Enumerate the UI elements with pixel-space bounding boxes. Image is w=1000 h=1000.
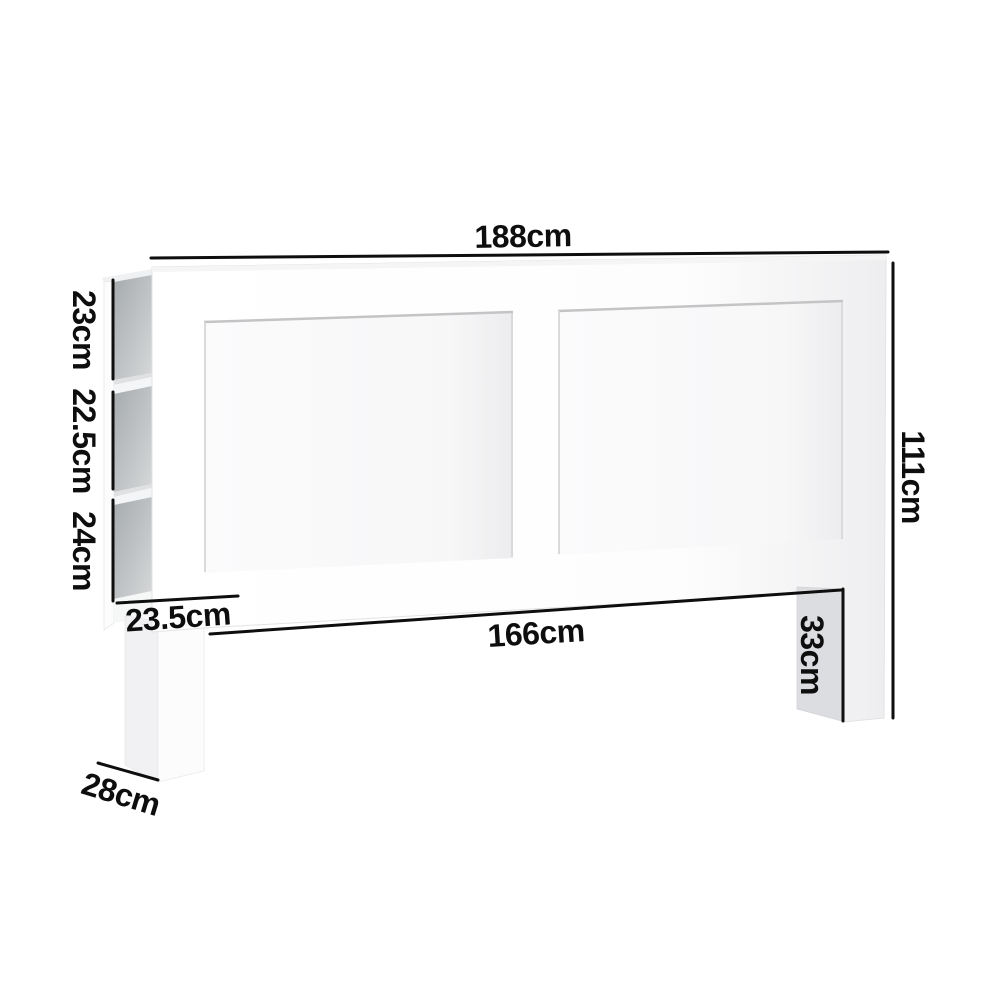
dim-label-shelf-depth: 23.5cm [124, 595, 232, 638]
shelf-column [102, 269, 152, 630]
dim-label-leg-height: 33cm [794, 615, 830, 695]
shelf-opening-bottom [114, 497, 152, 599]
left-leg [125, 616, 204, 782]
shelf-opening-middle [114, 386, 152, 492]
dim-label-shelf-opening-bottom: 24cm [66, 511, 102, 591]
left-leg-front-face [158, 616, 204, 782]
shelf-opening-top [114, 275, 152, 380]
left-leg-side-face [125, 616, 158, 782]
diagram-canvas: 188cm 23cm 22.5cm 24cm 23.5cm 166cm 33cm… [0, 0, 1000, 1000]
headboard-dimension-diagram: 188cm 23cm 22.5cm 24cm 23.5cm 166cm 33cm… [0, 0, 1000, 1000]
dim-label-overall-height: 111cm [895, 430, 931, 524]
dim-label-shelf-opening-top: 23cm [66, 290, 102, 370]
dim-label-overall-width: 188cm [474, 217, 572, 255]
headboard-panel-right [558, 301, 843, 555]
dim-label-shelf-opening-middle: 22.5cm [66, 388, 102, 494]
dim-label-bottom-edge-width: 166cm [486, 612, 585, 654]
headboard-panel-left [204, 312, 513, 573]
